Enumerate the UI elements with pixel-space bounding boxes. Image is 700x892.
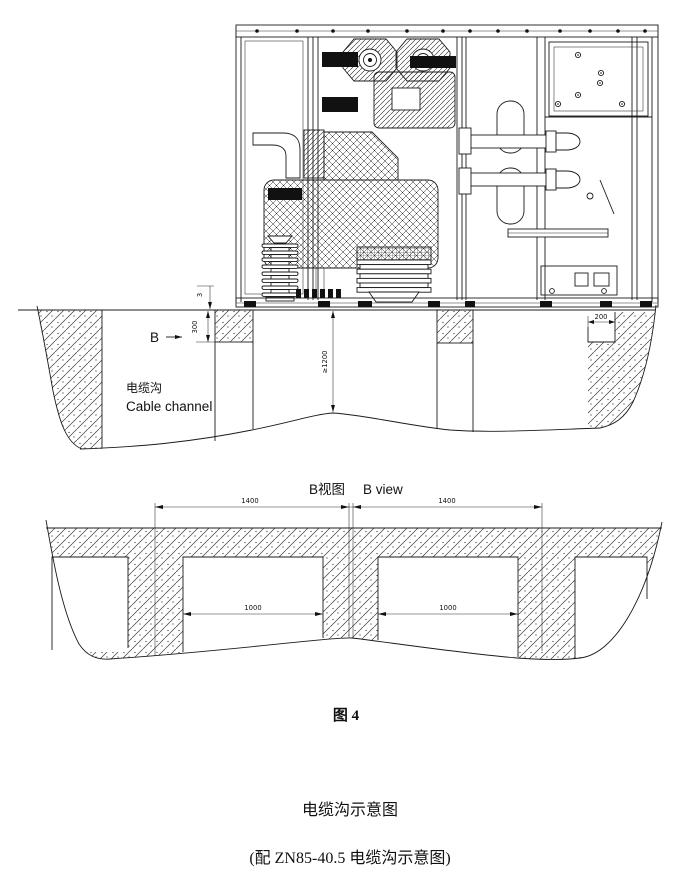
busbar-upper-right	[410, 56, 456, 68]
dim-panel-right: 1400	[438, 497, 455, 505]
foundation-beam-left	[215, 310, 253, 342]
b-view-hatch	[48, 528, 661, 660]
opening-d	[575, 557, 647, 657]
terminal-pad	[268, 188, 302, 200]
figure-title: 电缆沟示意图	[302, 800, 398, 819]
ground-section: 3 300 ≥1200 200 B 电缆沟	[18, 286, 656, 449]
dim-gap: 3	[196, 286, 214, 309]
duct-elbow	[253, 133, 300, 178]
mechanism-box	[541, 266, 617, 295]
figure-subtitle: (配 ZN85-40.5 电缆沟示意图)	[249, 848, 450, 867]
rear-panel	[545, 42, 652, 117]
dim-edge-value: 200	[595, 313, 608, 321]
dim-opening-left: 1000	[244, 604, 261, 612]
busbar-upper-left	[322, 52, 358, 67]
dim-panel-widths: 1400 1400	[155, 497, 542, 509]
section-marker: B	[150, 330, 182, 345]
busbar-lower-left	[322, 97, 358, 112]
channel-label-cn: 电缆沟	[126, 381, 162, 395]
pole-arm	[324, 132, 398, 180]
switchgear-elevation	[236, 25, 658, 307]
b-view-section: 1400 1400 1000 1000 B视图 B view	[46, 482, 662, 660]
captions: 图 4 电缆沟示意图 (配 ZN85-40.5 电缆沟示意图)	[249, 707, 450, 867]
figure-number: 图 4	[333, 707, 360, 724]
dim-edge: 200	[588, 313, 615, 327]
cad-sheet: 3 300 ≥1200 200 B 电缆沟	[0, 0, 700, 892]
channel-label-en: Cable channel	[126, 399, 212, 414]
section-marker-label: B	[150, 330, 159, 345]
b-view-title-cn: B视图	[309, 482, 345, 497]
dim-foundation-depth: 300	[191, 311, 216, 342]
base-rail	[236, 298, 658, 307]
post-insulator	[262, 236, 298, 301]
pole-column	[304, 130, 324, 178]
foundation-beam-right	[437, 310, 473, 343]
isolating-contacts	[459, 101, 580, 224]
bottom-break-line	[80, 413, 600, 449]
opening-a	[52, 557, 128, 652]
dim-opening-right: 1000	[439, 604, 456, 612]
bellows-insulator	[357, 247, 431, 302]
dim-panel-left: 1400	[241, 497, 258, 505]
left-pier-hatch	[37, 310, 102, 449]
b-view-title-en: B view	[363, 482, 403, 497]
dim-gap-value: 3	[196, 293, 204, 297]
dim-channel-depth-value: ≥1200	[321, 351, 329, 374]
dim-foundation-value: 300	[191, 321, 199, 334]
cable-channel-drawing: 3 300 ≥1200 200 B 电缆沟	[0, 0, 700, 892]
ct-block	[374, 72, 455, 128]
rear-panel-bolts	[555, 52, 624, 106]
dim-channel-depth: ≥1200	[321, 311, 335, 412]
